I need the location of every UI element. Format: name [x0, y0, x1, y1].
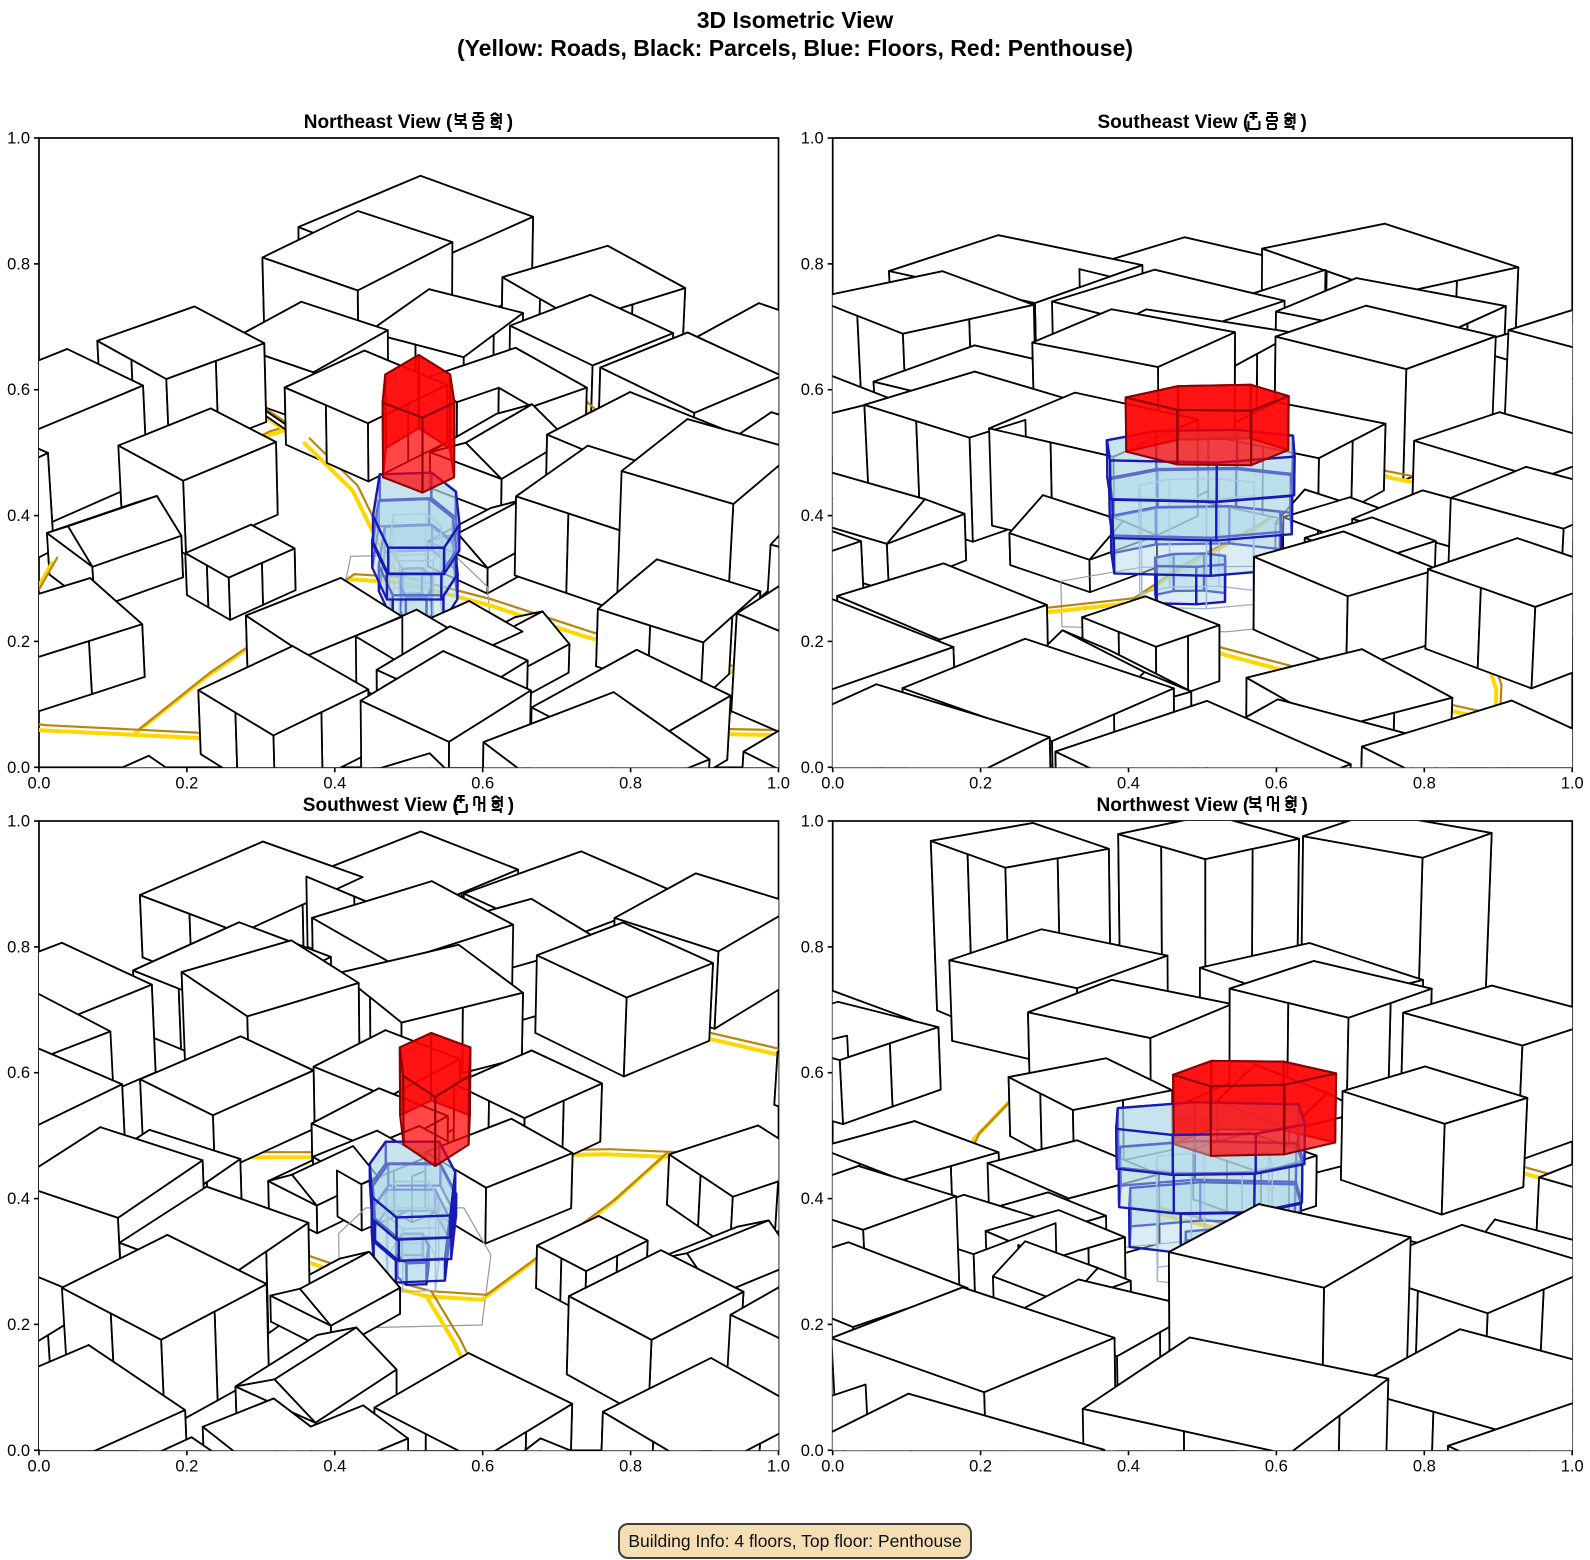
svg-text:(Yellow: Roads, Black: Parcels: (Yellow: Roads, Black: Parcels, Blue: Fl… — [457, 35, 1133, 61]
svg-text:0.4: 0.4 — [801, 507, 824, 525]
svg-text:0.2: 0.2 — [7, 1316, 30, 1334]
svg-text:0.6: 0.6 — [801, 1064, 824, 1082]
svg-text:0.6: 0.6 — [471, 774, 494, 792]
svg-text:0.8: 0.8 — [801, 938, 824, 956]
svg-text:1.0: 1.0 — [767, 774, 790, 792]
svg-text:0.6: 0.6 — [7, 381, 30, 399]
svg-text:0.6: 0.6 — [1265, 1457, 1288, 1475]
svg-text:0.6: 0.6 — [1265, 774, 1288, 792]
svg-text:1.0: 1.0 — [801, 130, 824, 148]
svg-text:0.0: 0.0 — [801, 1442, 824, 1460]
svg-text:0.8: 0.8 — [7, 938, 30, 956]
svg-text:Northwest View (: Northwest View ( — [1097, 795, 1250, 816]
svg-text:0.8: 0.8 — [7, 255, 30, 273]
svg-text:0.2: 0.2 — [969, 774, 992, 792]
svg-text:): ) — [1302, 795, 1308, 816]
svg-text:0.4: 0.4 — [7, 507, 30, 525]
svg-text:1.0: 1.0 — [7, 813, 30, 831]
svg-text:0.0: 0.0 — [7, 759, 30, 777]
svg-text:0.4: 0.4 — [1117, 1457, 1140, 1475]
svg-text:Southeast View (: Southeast View ( — [1098, 112, 1250, 133]
svg-text:1.0: 1.0 — [1561, 774, 1584, 792]
svg-text:0.2: 0.2 — [801, 633, 824, 651]
svg-text:0.0: 0.0 — [28, 1457, 51, 1475]
svg-text:0.2: 0.2 — [175, 1457, 198, 1475]
svg-text:): ) — [1301, 112, 1307, 133]
svg-text:0.0: 0.0 — [7, 1442, 30, 1460]
svg-text:0.8: 0.8 — [1413, 774, 1436, 792]
svg-text:0.4: 0.4 — [323, 1457, 346, 1475]
svg-text:0.0: 0.0 — [28, 774, 51, 792]
svg-text:Building Info: 4 floors, Top f: Building Info: 4 floors, Top floor: Pent… — [628, 1531, 961, 1551]
svg-text:0.4: 0.4 — [7, 1190, 30, 1208]
svg-text:0.2: 0.2 — [7, 633, 30, 651]
svg-text:0.8: 0.8 — [619, 1457, 642, 1475]
svg-text:0.6: 0.6 — [801, 381, 824, 399]
svg-text:1.0: 1.0 — [7, 130, 30, 148]
svg-text:0.8: 0.8 — [619, 774, 642, 792]
svg-text:0.0: 0.0 — [801, 759, 824, 777]
svg-text:0.8: 0.8 — [801, 255, 824, 273]
svg-text:1.0: 1.0 — [801, 813, 824, 831]
svg-text:0.4: 0.4 — [323, 774, 346, 792]
svg-text:): ) — [507, 112, 513, 133]
svg-text:Southwest View (: Southwest View ( — [303, 795, 460, 816]
svg-text:0.0: 0.0 — [821, 1457, 844, 1475]
svg-text:3D Isometric View: 3D Isometric View — [697, 7, 894, 33]
svg-text:0.2: 0.2 — [175, 774, 198, 792]
svg-text:): ) — [508, 795, 514, 816]
svg-text:Northeast View (: Northeast View ( — [304, 112, 453, 133]
svg-text:0.0: 0.0 — [821, 774, 844, 792]
svg-text:0.4: 0.4 — [801, 1190, 824, 1208]
svg-text:0.2: 0.2 — [969, 1457, 992, 1475]
svg-text:0.8: 0.8 — [1413, 1457, 1436, 1475]
svg-text:0.4: 0.4 — [1117, 774, 1140, 792]
svg-text:1.0: 1.0 — [1561, 1457, 1584, 1475]
svg-text:1.0: 1.0 — [767, 1457, 790, 1475]
svg-text:0.2: 0.2 — [801, 1316, 824, 1334]
svg-text:0.6: 0.6 — [7, 1064, 30, 1082]
svg-text:0.6: 0.6 — [471, 1457, 494, 1475]
